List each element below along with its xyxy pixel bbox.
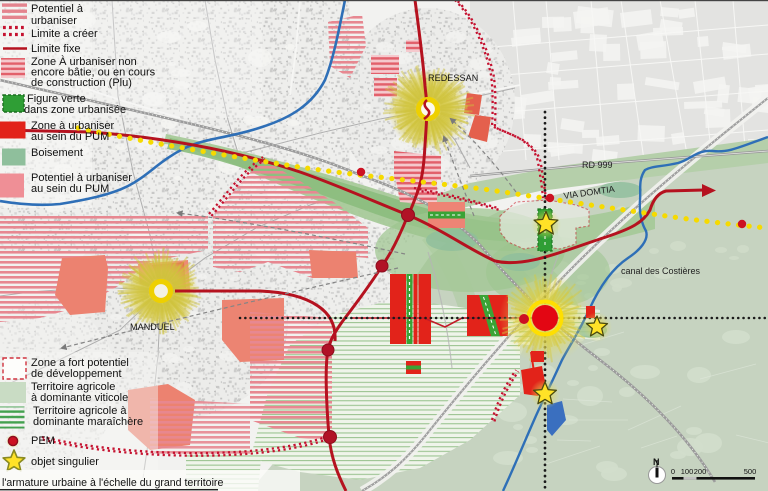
svg-text:MANDUEL: MANDUEL bbox=[130, 322, 175, 332]
svg-text:0: 0 bbox=[671, 467, 675, 476]
svg-text:N: N bbox=[653, 457, 660, 467]
svg-text:au sein du PUM: au sein du PUM bbox=[31, 131, 109, 143]
svg-text:à dominante viticole: à dominante viticole bbox=[31, 392, 128, 404]
svg-text:Limite fixe: Limite fixe bbox=[31, 43, 81, 55]
svg-text:dans zone urbanisée: dans zone urbanisée bbox=[24, 104, 126, 116]
svg-text:canal des Costières: canal des Costières bbox=[621, 266, 701, 276]
svg-text:Potentiel à: Potentiel à bbox=[31, 3, 84, 15]
svg-text:l'armature urbaine à l'échelle: l'armature urbaine à l'échelle du grand … bbox=[2, 477, 223, 489]
svg-text:de développement: de développement bbox=[31, 368, 122, 380]
svg-text:de construction (Plu): de construction (Plu) bbox=[31, 77, 132, 89]
svg-text:PEM: PEM bbox=[31, 435, 55, 447]
svg-text:dominante maraîchère: dominante maraîchère bbox=[33, 416, 143, 428]
svg-text:Limite a créer: Limite a créer bbox=[31, 28, 98, 40]
svg-text:RD 999: RD 999 bbox=[582, 160, 613, 170]
svg-text:100: 100 bbox=[681, 467, 694, 476]
svg-text:REDESSAN: REDESSAN bbox=[428, 73, 478, 83]
svg-text:Boisement: Boisement bbox=[31, 147, 83, 159]
svg-text:au sein du PUM: au sein du PUM bbox=[31, 183, 109, 195]
svg-text:500: 500 bbox=[744, 467, 757, 476]
svg-text:objet singulier: objet singulier bbox=[31, 456, 99, 468]
svg-text:200: 200 bbox=[694, 467, 707, 476]
svg-text:urbaniser: urbaniser bbox=[31, 15, 77, 27]
